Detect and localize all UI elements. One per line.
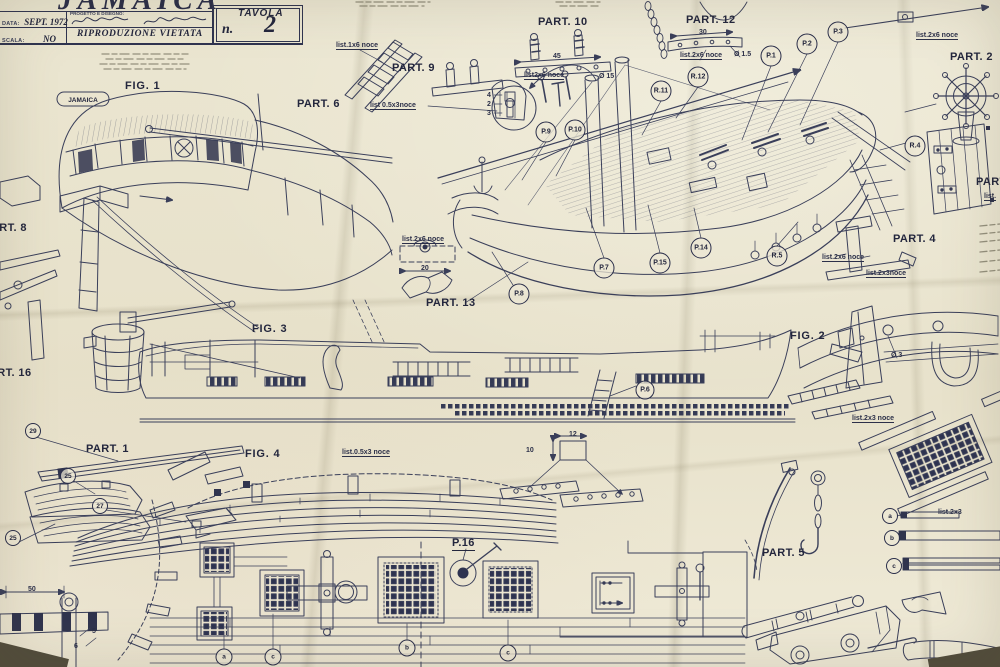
callout-circle: P.2 (797, 34, 818, 55)
fig2-label: FIG. 2 (790, 330, 825, 342)
annotation: list.2x6 noce (402, 236, 444, 244)
callout-circle: P.15 (650, 253, 671, 274)
callout-circle: 25 (60, 468, 76, 484)
title-block: JAMAICA DATA: SEPT. 1972 SCALA: NO PROGE… (0, 0, 330, 52)
fig1-stern-ship-drawing: JAMAICA (57, 91, 393, 332)
designer-signature (70, 14, 210, 28)
fig1-label: FIG. 1 (125, 80, 160, 92)
strip-legend-drawing (899, 512, 1000, 570)
part5-davit-drawing (745, 460, 825, 580)
tavola-number: 2 (264, 12, 276, 39)
callout-circle: 27 (92, 498, 108, 514)
scala-field: SCALA: NO (2, 29, 56, 47)
callout-circle: P.3 (828, 22, 849, 43)
riproduzione-label: RIPRODUZIONE VIETATA (77, 29, 203, 39)
callout-circle: c (886, 558, 902, 574)
annotation: 45 (553, 53, 561, 60)
callout-circle: P.6 (636, 381, 655, 400)
annotation: list.2x6 noce (822, 254, 864, 262)
part3-label: PART. (976, 176, 1000, 188)
annotation: list.0.5x3 noce (342, 449, 390, 457)
callout-circle: 25 (5, 530, 21, 546)
cannon-drawings (696, 564, 998, 664)
part10-drawing (515, 30, 611, 107)
main-cutaway-ship-drawing (19, 2, 988, 650)
part13-label: PART. 13 (426, 297, 475, 309)
annotation: 50 (28, 586, 36, 593)
fig3-label: FIG. 3 (252, 323, 287, 335)
annotation: 5 (92, 628, 96, 635)
annotation: list.2x6 noce (916, 32, 958, 40)
callout-circle: P.10 (565, 120, 586, 141)
annotation: list 0.5x3noce (370, 102, 416, 110)
callout-circle: b (399, 640, 416, 657)
annotation: list2x6 noce (524, 72, 564, 80)
part4-label: PART. 4 (893, 233, 936, 245)
callout-circle: c (500, 645, 517, 662)
part6-label: PART. 6 (297, 98, 340, 110)
tavola-n: n. (222, 22, 233, 38)
fig1-nameplate: JAMAICA (68, 97, 98, 104)
data-value: SEPT. 1972 (24, 17, 68, 27)
scanned-plan-sheet: JAMAICA (0, 0, 1000, 667)
scala-label: SCALA: (2, 38, 25, 44)
tavola-label: TAVOLA (238, 8, 284, 19)
part5-label: PART. 5 (762, 547, 805, 559)
part8-label: PART. 8 (0, 222, 27, 234)
part9-label: PART. 9 (392, 62, 435, 74)
callout-circle: P.1 (761, 46, 782, 67)
part12-label: PART. 12 (686, 14, 735, 26)
annotation: 3 (487, 110, 491, 117)
annotation: list.2x3 (938, 509, 962, 516)
callout-circle: b (884, 530, 900, 546)
annotation: list.2x6 noce (680, 52, 722, 60)
annotation: 4 (487, 92, 491, 99)
part16-label: PART. 16 (0, 367, 31, 379)
annotation: Ø 3 (891, 352, 902, 359)
fig2-grating-kit (859, 369, 1000, 521)
p16-label: P.16 (452, 537, 475, 551)
callout-circle: P.8 (509, 284, 530, 305)
data-field: DATA: SEPT. 1972 (2, 12, 68, 30)
annotation: Ø 1.5 (734, 51, 751, 58)
callout-circle: P.9 (536, 122, 557, 143)
callout-circle: P.7 (594, 258, 615, 279)
callout-circle: R.12 (688, 67, 709, 88)
fig4-label: FIG. 4 (245, 448, 280, 460)
annotation: 2 (487, 101, 491, 108)
part1-label: PART. 1 (86, 443, 129, 455)
plan-line-art: JAMAICA (0, 0, 1000, 667)
deck-gratings-drawing (150, 541, 747, 667)
annotation: 12 (569, 431, 577, 438)
annotation: 10 (526, 447, 534, 454)
callout-circle: a (882, 508, 898, 524)
part2-label: PART. 2 (950, 51, 993, 63)
scala-value: NO (43, 34, 56, 44)
annotation: list.2x3noce (866, 270, 906, 278)
annotation: 6 (74, 643, 78, 650)
callout-circle: a (216, 649, 233, 666)
annotation: list. (984, 193, 996, 201)
callout-circle: P.14 (691, 238, 712, 259)
part8-drawing (0, 176, 172, 360)
callout-circle: 29 (25, 423, 41, 439)
callout-circle: c (265, 649, 282, 666)
callout-circle: R.4 (905, 136, 926, 157)
annotation: list.1x6 noce (336, 42, 378, 50)
annotation: Ø 15 (599, 73, 614, 80)
fig3-profile-drawing (139, 300, 795, 422)
annotation: list.2x3 noce (852, 415, 894, 423)
part10-label: PART. 10 (538, 16, 587, 28)
annotation: 20 (421, 265, 429, 272)
annotation: 30 (699, 29, 707, 36)
callout-circle: R.5 (767, 246, 788, 267)
callout-circle: R.11 (651, 81, 672, 102)
data-label: DATA: (2, 21, 20, 27)
